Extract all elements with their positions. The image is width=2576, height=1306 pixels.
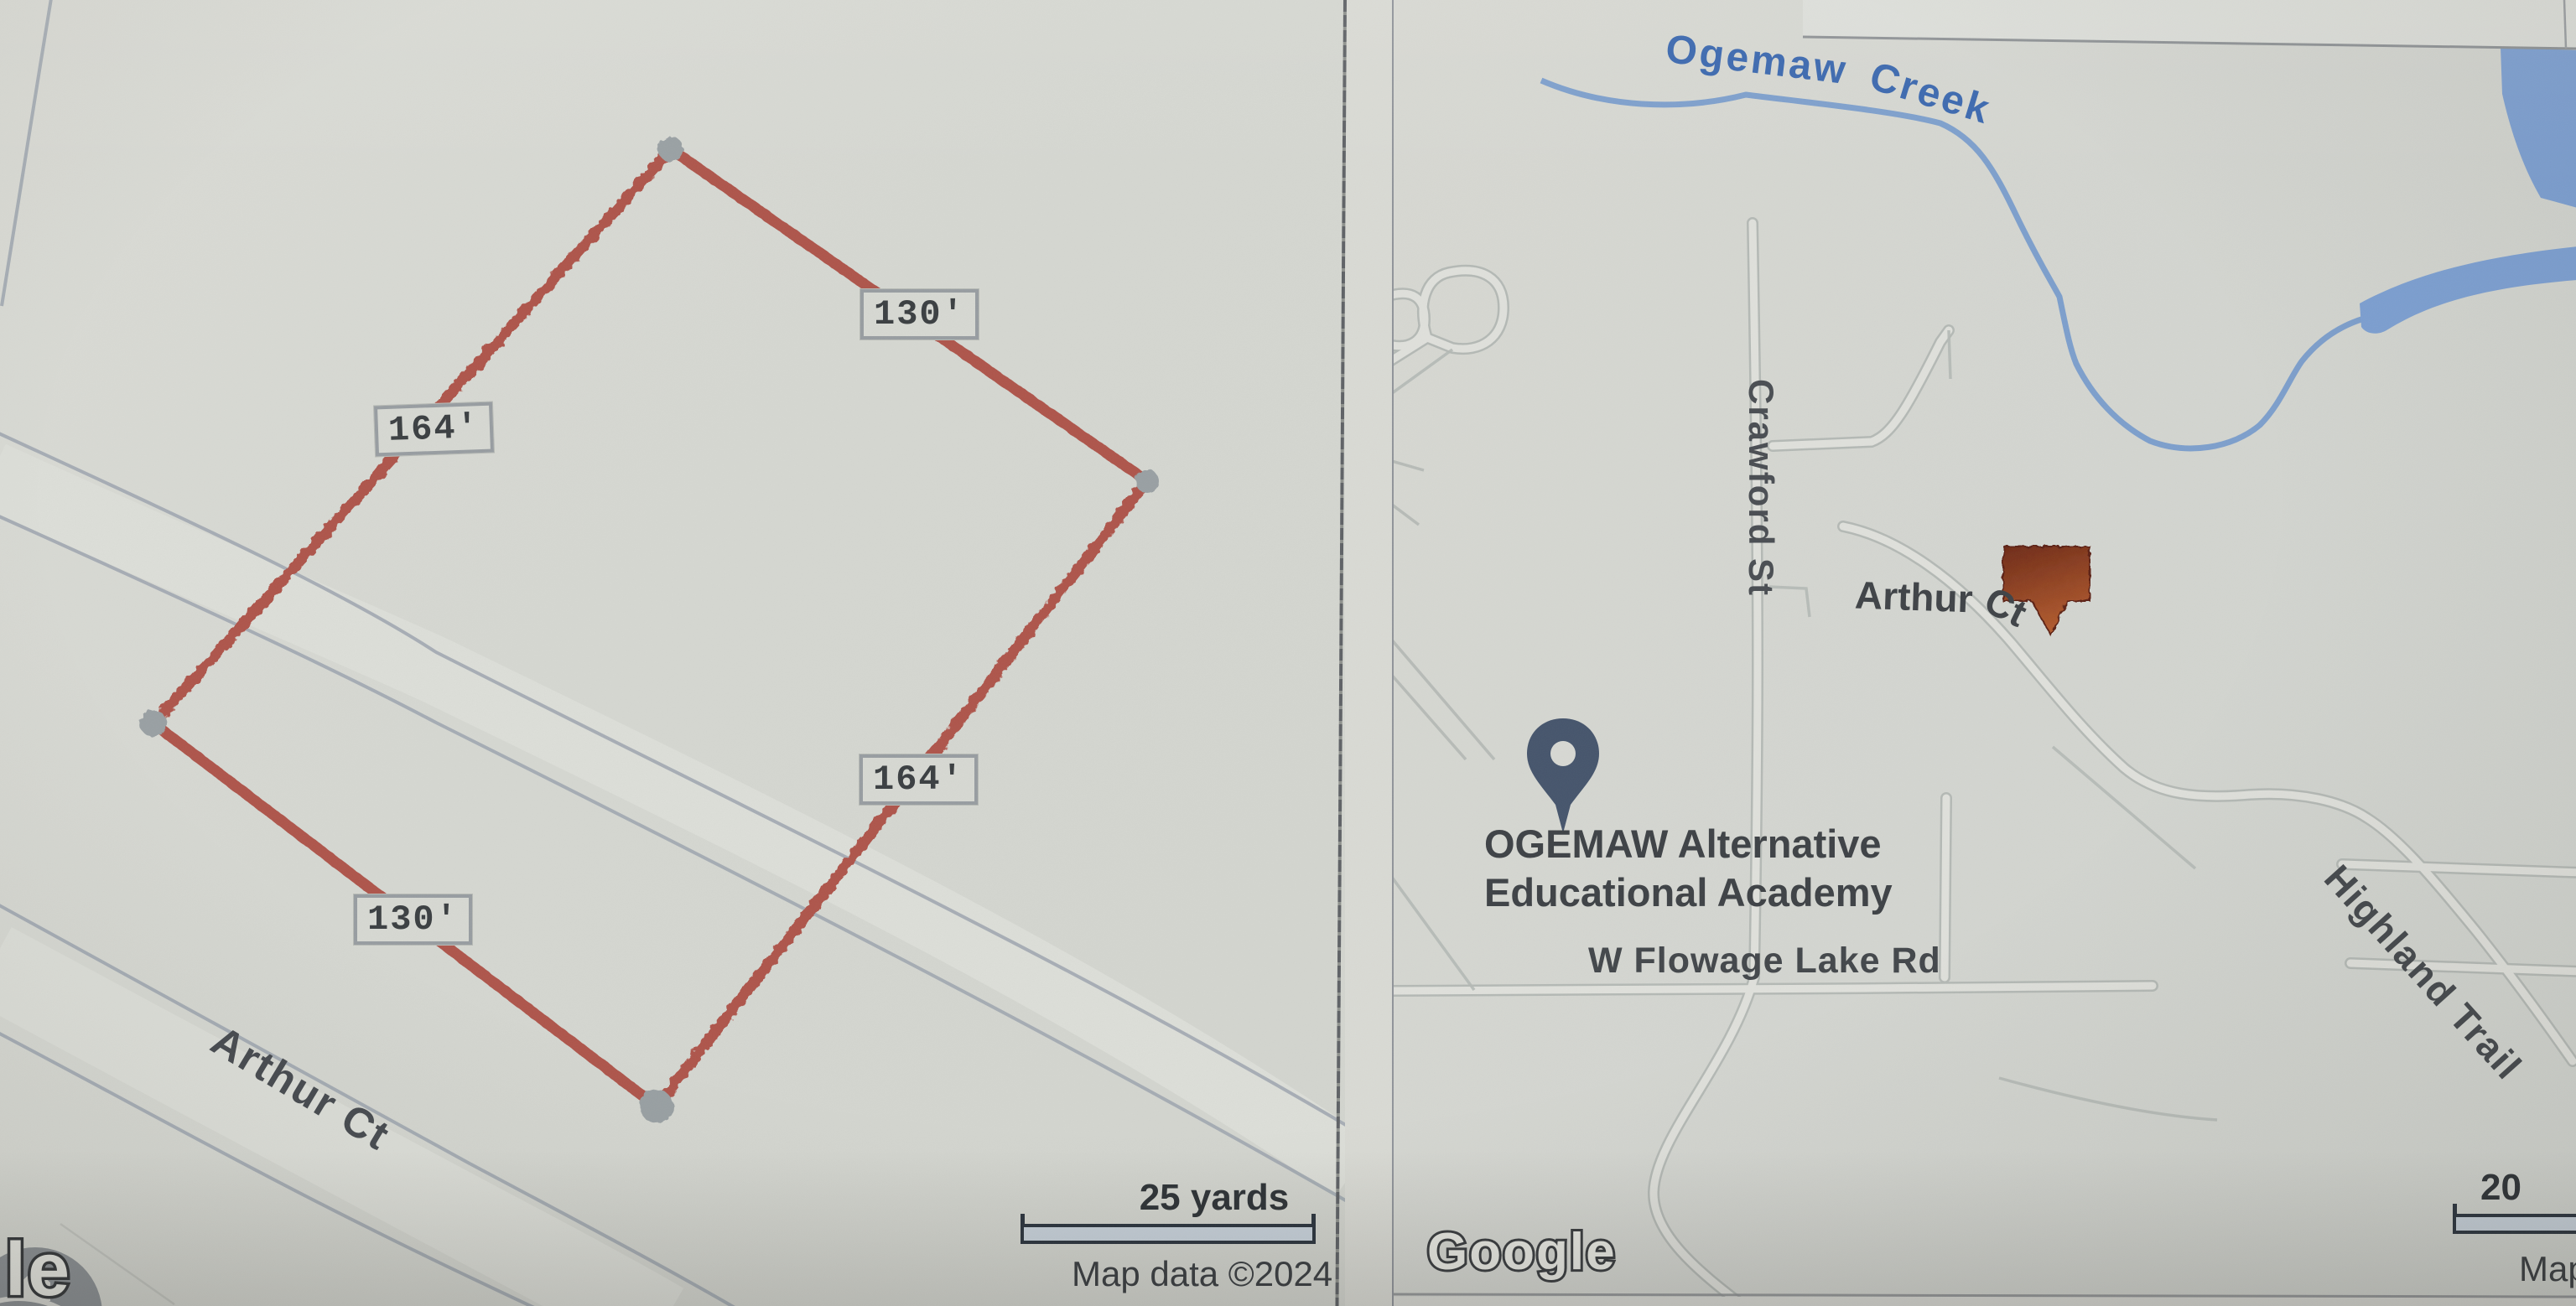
poi-label-line1: OGEMAW Alternative [1484,820,1893,868]
scale-bar-tick [1311,1214,1316,1227]
google-logo[interactable]: Google [1427,1222,1617,1282]
vertex-dot [640,1090,673,1123]
street-label-arthur-ct-right: Arthur Ct [1854,572,2025,623]
scale-label-partial: 20 [2480,1167,2521,1209]
road-line [2,0,52,306]
dimension-label-left: 164' [374,402,494,457]
dimension-label-top: 130' [860,289,979,339]
scale-label: 25 yards [1105,1177,1323,1219]
scale-bar-tick [1021,1214,1025,1227]
dimension-label-right: 164' [860,754,978,805]
panel-top-edge [1803,0,2576,49]
google-map-panel[interactable] [1392,0,2576,1306]
scale-bar [1021,1224,1316,1244]
photo-of-map-exhibit: 130' 164' 164' 130' Arthur Ct 25 yards M… [0,0,2576,1306]
dimension-label-bottom: 130' [354,894,472,945]
river-water-area [2501,47,2576,208]
google-logo-partial: le [5,1227,71,1306]
poi-label-academy: OGEMAW Alternative Educational Academy [1484,820,1893,917]
scale-bar-partial [2453,1214,2576,1234]
vertex-dot [658,137,683,162]
panel-bottom-edge [1394,1294,2576,1306]
river-water-ribbon [2360,246,2576,334]
parcel-map-drawing [0,0,1345,1306]
google-map-drawing [1394,0,2576,1306]
vertex-dot [1135,469,1159,493]
street-label-arthur: Arthur [1854,573,1973,620]
scale-bar-tick [2453,1204,2457,1217]
street-label-w-flowage-lake-rd: W Flowage Lake Rd [1588,941,1941,982]
poi-pin-icon [1527,718,1599,833]
street-label-crawford-st: Crawford St [1741,379,1781,597]
ogemaw-creek-line [1541,80,2364,448]
parcel-map-panel[interactable]: 130' 164' 164' 130' Arthur Ct 25 yards M… [0,0,1345,1306]
vertex-dot [140,710,167,737]
poi-label-line2: Educational Academy [1484,868,1893,917]
map-attribution-partial: Map [2519,1249,2576,1289]
water-features [1541,47,2576,448]
map-attribution: Map data ©2024 [1072,1254,1332,1294]
